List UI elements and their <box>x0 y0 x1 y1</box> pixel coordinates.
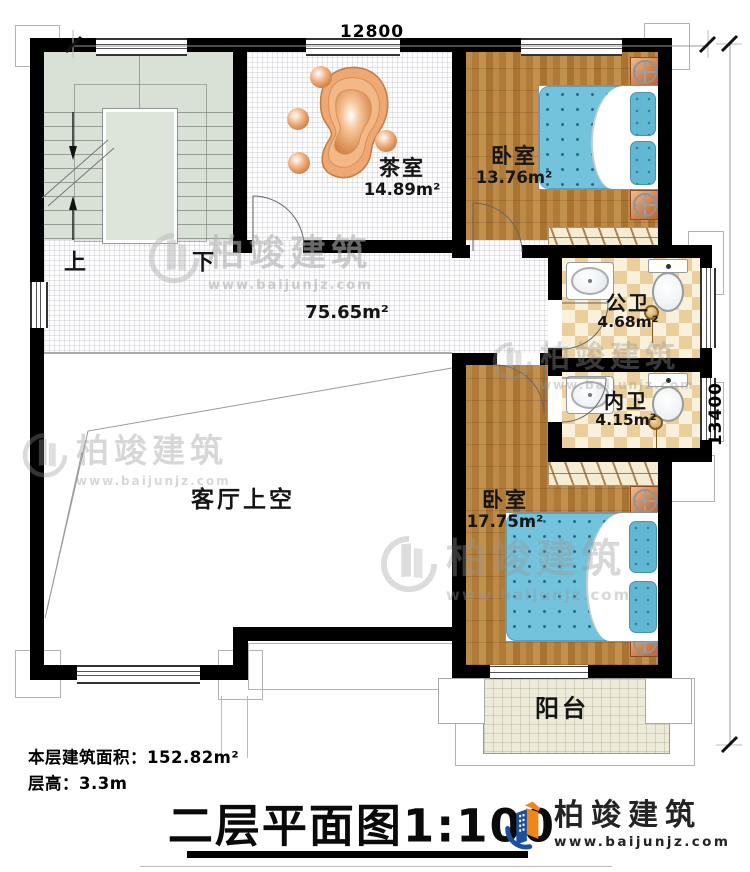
watermark-logo-icon <box>380 533 438 597</box>
company-logo-icon <box>500 798 548 852</box>
wall <box>233 627 466 641</box>
wall <box>548 448 712 462</box>
bed <box>538 85 660 190</box>
room-area: 4.15m² <box>595 413 656 430</box>
stool <box>375 130 397 152</box>
sill-outline <box>670 455 715 502</box>
window <box>96 38 187 56</box>
wall <box>187 38 306 52</box>
room-name: 内卫 <box>595 390 656 412</box>
wall <box>452 52 466 253</box>
watermark: 柏竣建筑 www.baijunjz.com <box>22 424 231 488</box>
wall <box>658 38 672 245</box>
title-thin-line <box>140 866 612 867</box>
room-area: 14.89m² <box>364 181 441 199</box>
dimension-top: 12800 <box>340 22 404 42</box>
floor-area-info: 本层建筑面积：152.82m² <box>28 744 239 768</box>
wall <box>452 358 466 678</box>
stairs-down-label: 下 <box>192 252 214 277</box>
lamp-icon <box>633 489 657 513</box>
nightstand <box>630 57 660 87</box>
wardrobe <box>548 460 660 486</box>
lamp-icon <box>633 193 657 217</box>
dimension-right: 13400 <box>706 382 726 446</box>
eave-outline <box>248 643 462 690</box>
bedroom2-label: 卧室 17.75m² <box>467 489 544 531</box>
void-edge-line <box>44 352 452 354</box>
floor-height-info: 层高：3.3m <box>28 770 127 794</box>
corridor-floor <box>44 240 548 353</box>
wall <box>452 665 490 678</box>
public-bath-label: 公卫 4.68m² <box>597 292 658 332</box>
nightstand <box>630 190 660 220</box>
private-bath-label: 内卫 4.15m² <box>595 390 656 430</box>
room-name: 茶室 <box>364 157 441 181</box>
stair-landing <box>106 112 174 240</box>
wall <box>303 240 466 253</box>
balcony-pillar <box>645 678 692 724</box>
wall <box>658 448 672 678</box>
window <box>521 38 622 56</box>
pillow <box>629 521 657 573</box>
room-name: 卧室 <box>476 145 553 169</box>
stair-steps-left <box>44 112 106 240</box>
balcony-label: 阳台 <box>535 696 589 723</box>
room-area: 13.76m² <box>476 169 553 187</box>
tea-room-floor <box>247 52 452 240</box>
wardrobe <box>548 227 660 247</box>
toilet-tank <box>648 259 688 273</box>
wall <box>30 38 44 282</box>
watermark-name: 柏竣建筑 <box>76 424 231 472</box>
bed <box>505 512 660 642</box>
wall <box>30 665 77 680</box>
pillow <box>629 581 657 633</box>
wall <box>452 245 470 258</box>
watermark-url: www.baijunjz.com <box>76 474 231 488</box>
wall <box>588 665 672 678</box>
corridor-area-label: 75.65m² <box>305 303 389 323</box>
pillow <box>630 92 656 136</box>
floor-plan-page: 柏竣建筑 www.baijunjz.com 柏竣建筑 www.baijunjz.… <box>0 0 750 872</box>
wall <box>700 258 712 268</box>
room-name: 公卫 <box>597 292 658 314</box>
title-text: 二层平面图 <box>168 800 403 853</box>
company-url: www.baijunjz.com <box>554 834 730 850</box>
wall <box>30 328 44 680</box>
window <box>77 665 200 684</box>
sink-basin <box>571 267 609 295</box>
wall <box>700 348 712 378</box>
window <box>30 282 48 328</box>
eave-line <box>247 696 248 758</box>
wall <box>233 240 252 253</box>
wall <box>35 38 96 52</box>
tea-room-label: 茶室 14.89m² <box>364 157 441 199</box>
balcony-pillar <box>438 678 485 724</box>
wall <box>522 245 712 258</box>
stair-divider-line <box>139 52 140 112</box>
stairs-up-label: 上 <box>64 252 86 277</box>
living-void-label: 客厅上空 <box>191 488 295 514</box>
room-area: 4.68m² <box>597 315 658 332</box>
lamp-icon <box>633 60 657 84</box>
stool <box>287 108 309 130</box>
window <box>700 268 716 348</box>
sliding-door <box>490 666 588 679</box>
wall <box>548 258 562 300</box>
title-underline <box>187 851 528 858</box>
toilet-tank <box>648 373 688 387</box>
room-area: 17.75m² <box>467 513 544 531</box>
watermark-logo-icon <box>22 430 68 482</box>
wall <box>400 38 521 52</box>
drawing-title: 二层平面图1:100 <box>168 790 556 855</box>
company-name: 柏竣建筑 <box>554 801 730 831</box>
stair-steps-right <box>174 112 233 240</box>
room-name: 卧室 <box>467 489 544 513</box>
wall <box>540 353 562 365</box>
wall <box>233 641 248 680</box>
wall <box>562 358 700 372</box>
stool <box>310 66 332 88</box>
stool <box>288 152 310 174</box>
wall <box>233 52 247 253</box>
pillow <box>630 141 656 185</box>
company-logo: 柏竣建筑 www.baijunjz.com <box>500 798 730 852</box>
bedroom1-label: 卧室 13.76m² <box>476 145 553 187</box>
